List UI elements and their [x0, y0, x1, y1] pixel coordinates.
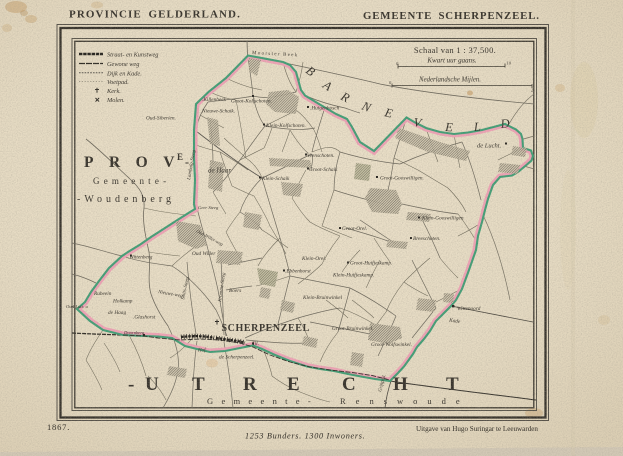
svg-text:1253 Bunders. 1300 Inwoners.: 1253 Bunders. 1300 Inwoners.	[245, 432, 365, 441]
svg-text:Uitgave van Hugo Suringar te L: Uitgave van Hugo Suringar te Leeuwarden	[416, 425, 538, 433]
svg-text:1867.: 1867.	[47, 422, 70, 432]
